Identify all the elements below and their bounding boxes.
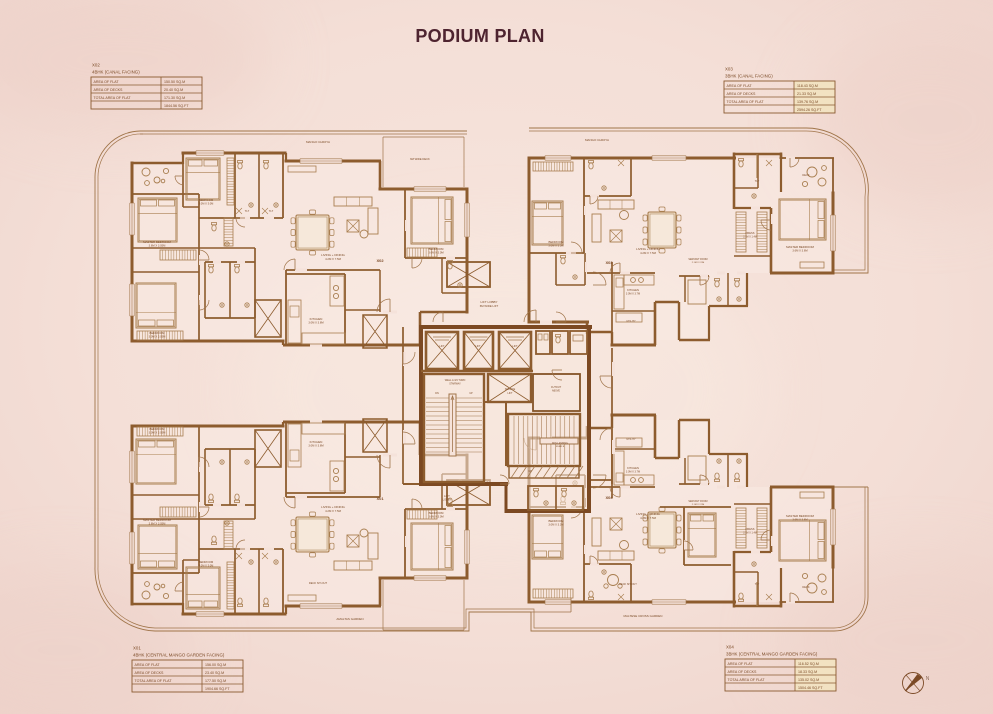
- svg-text:4.2M X 7.5M: 4.2M X 7.5M: [325, 257, 342, 261]
- svg-text:2.1M X 2.9M: 2.1M X 2.9M: [692, 262, 705, 264]
- svg-text:TOTAL AREA OF FLAT: TOTAL AREA OF FLAT: [728, 678, 766, 682]
- svg-text:MASTER BEDROOM: MASTER BEDROOM: [143, 240, 171, 244]
- svg-text:DRESS: DRESS: [746, 527, 755, 531]
- svg-text:3.0M X 3.8M: 3.0M X 3.8M: [308, 444, 324, 448]
- svg-text:DN: DN: [435, 392, 439, 395]
- svg-text:3.0M X 3.7M: 3.0M X 3.7M: [626, 293, 640, 296]
- svg-text:KITCHEN: KITCHEN: [310, 440, 323, 444]
- svg-text:UP: UP: [528, 470, 532, 473]
- svg-text:BEDROOM: BEDROOM: [549, 519, 565, 523]
- svg-text:23.40 SQ.M: 23.40 SQ.M: [205, 671, 224, 675]
- svg-text:BEDROOM: BEDROOM: [429, 511, 445, 515]
- svg-text:3.0M X 3.3M: 3.0M X 3.3M: [548, 244, 564, 248]
- svg-text:135.02 SQ.M: 135.02 SQ.M: [798, 678, 819, 682]
- svg-text:STAIRWAY: STAIRWAY: [449, 382, 461, 385]
- svg-text:AREA OF DECKS: AREA OF DECKS: [94, 88, 124, 92]
- svg-text:1904.66 SQ.FT: 1904.66 SQ.FT: [205, 687, 230, 691]
- svg-text:LIFT: LIFT: [439, 345, 445, 348]
- svg-text:3.6M X 3.05M: 3.6M X 3.05M: [149, 522, 166, 526]
- svg-text:2.1M X 1.4M: 2.1M X 1.4M: [743, 531, 757, 534]
- svg-text:N: N: [926, 676, 930, 682]
- svg-text:3BHK (CANAL FACING): 3BHK (CANAL FACING): [725, 74, 773, 79]
- svg-text:MALTESE CROSS GARDEN: MALTESE CROSS GARDEN: [624, 614, 663, 618]
- svg-text:DECK SIT-OUT: DECK SIT-OUT: [309, 581, 328, 585]
- svg-text:X01: X01: [376, 496, 384, 501]
- svg-text:LIFT: LIFT: [475, 345, 481, 348]
- svg-text:DECK: DECK: [802, 173, 809, 177]
- svg-text:BEDROOM: BEDROOM: [549, 240, 565, 244]
- svg-text:1504.46 SQ.FT: 1504.46 SQ.FT: [798, 686, 823, 690]
- svg-text:4.2M X 7.5M: 4.2M X 7.5M: [325, 509, 342, 513]
- svg-text:2.1M X 2.9M: 2.1M X 2.9M: [692, 504, 705, 506]
- svg-text:TLT: TLT: [269, 209, 274, 213]
- svg-text:AMALTAS GARDEN: AMALTAS GARDEN: [336, 617, 363, 621]
- svg-text:18.33 SQ.M: 18.33 SQ.M: [798, 670, 817, 674]
- svg-text:BEDROOM: BEDROOM: [150, 427, 166, 431]
- svg-text:LIFT: LIFT: [444, 494, 450, 498]
- svg-text:116.52 SQ.M: 116.52 SQ.M: [798, 662, 819, 666]
- svg-text:LOBBY: LOBBY: [443, 498, 452, 502]
- svg-text:X01: X01: [133, 646, 141, 651]
- svg-text:177.50 SQ.M: 177.50 SQ.M: [205, 679, 226, 683]
- svg-text:3.6M X 3.05M: 3.6M X 3.05M: [149, 244, 166, 248]
- svg-text:X02: X02: [92, 63, 100, 68]
- svg-text:MID-LANDING: MID-LANDING: [552, 442, 568, 445]
- svg-text:AREA OF FLAT: AREA OF FLAT: [727, 84, 753, 88]
- svg-text:X02: X02: [376, 258, 384, 263]
- svg-text:21.33 SQ.M: 21.33 SQ.M: [797, 92, 816, 96]
- svg-text:3.0M X 3.0M: 3.0M X 3.0M: [199, 202, 214, 206]
- svg-text:150.50 SQ.M: 150.50 SQ.M: [164, 80, 185, 84]
- svg-text:LIFT: LIFT: [512, 345, 518, 348]
- svg-text:3.0M X 3.3M: 3.0M X 3.3M: [548, 523, 564, 527]
- svg-text:TLT: TLT: [755, 179, 760, 183]
- svg-text:4.2M X 7.5M: 4.2M X 7.5M: [640, 251, 657, 255]
- svg-text:AREA OF FLAT: AREA OF FLAT: [728, 662, 754, 666]
- svg-text:3.0M X 3.05M: 3.0M X 3.05M: [149, 431, 166, 435]
- svg-text:20.40 SQ.M: 20.40 SQ.M: [164, 88, 183, 92]
- svg-text:BEDROOM: BEDROOM: [150, 331, 166, 335]
- svg-text:X04: X04: [605, 495, 613, 500]
- svg-text:KITCHEN: KITCHEN: [627, 466, 639, 470]
- svg-text:3.0M X 3.7M: 3.0M X 3.7M: [626, 471, 640, 474]
- svg-text:MANGO CHIDIYA: MANGO CHIDIYA: [585, 138, 609, 142]
- svg-text:DECK: DECK: [802, 585, 809, 589]
- svg-text:1844.56 SQ.FT: 1844.56 SQ.FT: [164, 104, 189, 108]
- svg-text:DRESS: DRESS: [746, 231, 755, 235]
- svg-text:ABOVE: ABOVE: [552, 389, 560, 392]
- svg-text:4BHK (CENTRAL MANGO GARDEN FAC: 4BHK (CENTRAL MANGO GARDEN FACING): [133, 653, 225, 658]
- svg-text:SERVANT ROOM: SERVANT ROOM: [688, 258, 707, 261]
- svg-text:156.00 SQ.M: 156.00 SQ.M: [205, 663, 226, 667]
- svg-text:118.43 SQ.M: 118.43 SQ.M: [797, 84, 818, 88]
- svg-text:TOTAL AREA OF FLAT: TOTAL AREA OF FLAT: [94, 96, 132, 100]
- svg-text:X03: X03: [725, 67, 733, 72]
- svg-text:3.6M X 3.0M: 3.6M X 3.0M: [428, 251, 444, 255]
- svg-text:AREA OF DECKS: AREA OF DECKS: [727, 92, 757, 96]
- svg-text:BEDROOM: BEDROOM: [429, 247, 445, 251]
- svg-text:AREA OF FLAT: AREA OF FLAT: [135, 663, 161, 667]
- svg-text:4BHK (CANAL FACING): 4BHK (CANAL FACING): [92, 70, 140, 75]
- svg-text:2594.26 SQ.FT: 2594.26 SQ.FT: [797, 108, 822, 112]
- svg-text:STAIR B: STAIR B: [556, 445, 565, 448]
- svg-text:KITCHEN: KITCHEN: [310, 317, 323, 321]
- svg-text:UTILITY: UTILITY: [626, 320, 636, 323]
- svg-text:WELL A 3/4 TURN: WELL A 3/4 TURN: [445, 379, 466, 382]
- svg-text:6M WIDE LIFT: 6M WIDE LIFT: [480, 304, 499, 308]
- svg-text:139.76 SQ.M: 139.76 SQ.M: [797, 100, 818, 104]
- svg-text:TOTAL AREA OF FLAT: TOTAL AREA OF FLAT: [727, 100, 765, 104]
- svg-text:AREA OF FLAT: AREA OF FLAT: [94, 80, 120, 84]
- svg-text:4.2M X 7.5M: 4.2M X 7.5M: [640, 516, 657, 520]
- svg-text:3.0M X 3.05M: 3.0M X 3.05M: [149, 335, 166, 339]
- svg-text:MASTER BEDROOM: MASTER BEDROOM: [786, 245, 814, 249]
- svg-text:UP: UP: [469, 392, 473, 395]
- svg-text:3.6M X 3.0M: 3.6M X 3.0M: [428, 515, 444, 519]
- svg-text:SERVICE: SERVICE: [505, 388, 516, 391]
- svg-text:AREA OF DECKS: AREA OF DECKS: [728, 670, 758, 674]
- svg-text:TLT: TLT: [755, 582, 760, 586]
- svg-text:3BHK (CENTRAL MANGO GARDEN FAC: 3BHK (CENTRAL MANGO GARDEN FACING): [726, 652, 818, 657]
- svg-text:CUTOUT: CUTOUT: [551, 386, 562, 389]
- svg-text:DECK SIT-OUT: DECK SIT-OUT: [619, 583, 637, 586]
- svg-text:UTILITY: UTILITY: [626, 438, 636, 441]
- svg-text:3.0M X 3.0M: 3.0M X 3.0M: [199, 564, 214, 568]
- svg-text:LIFT: LIFT: [508, 392, 513, 395]
- svg-text:TOTAL AREA OF FLAT: TOTAL AREA OF FLAT: [135, 679, 173, 683]
- svg-text:MANGO CHIDIYA: MANGO CHIDIYA: [306, 140, 330, 144]
- svg-text:171.30 SQ.M: 171.30 SQ.M: [164, 96, 185, 100]
- svg-text:3.6M X 3.6M: 3.6M X 3.6M: [792, 518, 808, 522]
- svg-text:SERVANT ROOM: SERVANT ROOM: [688, 500, 707, 503]
- svg-text:X04: X04: [726, 645, 734, 650]
- svg-text:X03: X03: [605, 260, 613, 265]
- svg-text:TLT: TLT: [245, 209, 250, 213]
- svg-text:PODIUM PLAN: PODIUM PLAN: [415, 26, 544, 46]
- svg-text:KITCHEN: KITCHEN: [627, 288, 639, 292]
- svg-text:3.6M X 3.6M: 3.6M X 3.6M: [792, 249, 808, 253]
- svg-text:6M WIDE DECK: 6M WIDE DECK: [410, 157, 430, 161]
- svg-text:BEDROOM: BEDROOM: [199, 198, 214, 202]
- svg-text:AREA OF DECKS: AREA OF DECKS: [135, 671, 165, 675]
- svg-text:MASTER BEDROOM: MASTER BEDROOM: [143, 518, 171, 522]
- svg-text:MASTER BEDROOM: MASTER BEDROOM: [786, 514, 814, 518]
- svg-text:3.0M X 3.8M: 3.0M X 3.8M: [308, 321, 324, 325]
- svg-text:BEDROOM: BEDROOM: [199, 560, 214, 564]
- svg-text:2.1M X 1.4M: 2.1M X 1.4M: [743, 235, 757, 238]
